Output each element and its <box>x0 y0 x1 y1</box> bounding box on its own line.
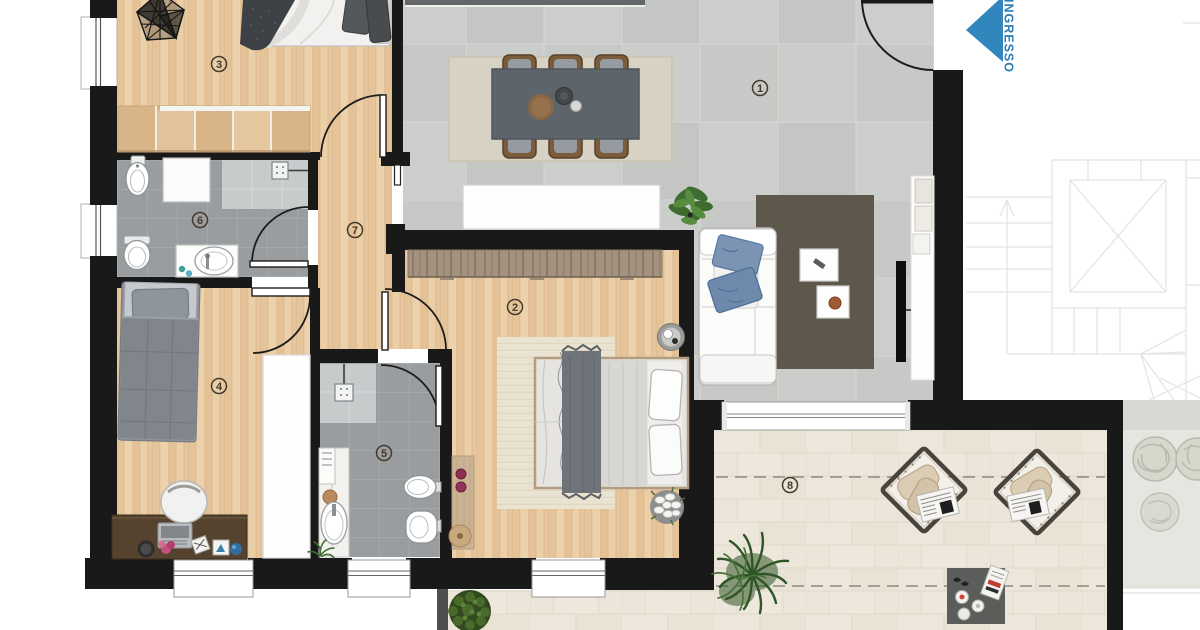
svg-text:6: 6 <box>197 215 203 227</box>
svg-text:8: 8 <box>787 480 793 492</box>
svg-text:2: 2 <box>512 302 518 314</box>
svg-text:INGRESSO: INGRESSO <box>1002 0 1016 73</box>
svg-text:5: 5 <box>381 448 387 460</box>
svg-text:1: 1 <box>757 83 763 95</box>
svg-text:4: 4 <box>216 381 223 393</box>
svg-text:7: 7 <box>352 225 358 237</box>
svg-text:3: 3 <box>216 59 222 71</box>
